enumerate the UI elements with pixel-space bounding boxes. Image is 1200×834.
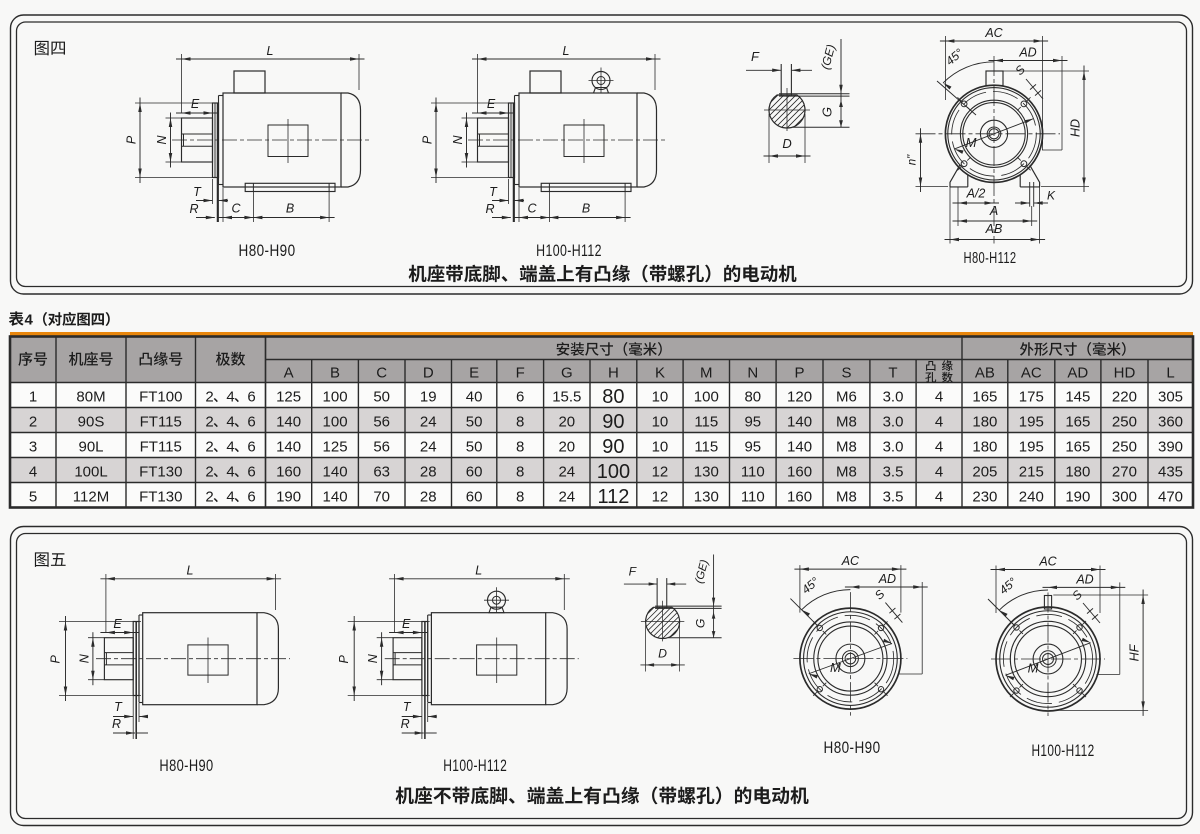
svg-text:3: 3 bbox=[29, 438, 37, 455]
svg-text:435: 435 bbox=[1158, 463, 1183, 480]
svg-text:N: N bbox=[78, 653, 92, 663]
svg-text:N: N bbox=[366, 653, 380, 663]
svg-text:24: 24 bbox=[558, 488, 575, 505]
svg-text:8: 8 bbox=[516, 463, 524, 480]
svg-text:M: M bbox=[830, 660, 841, 675]
svg-text:100: 100 bbox=[323, 413, 348, 430]
svg-text:E: E bbox=[191, 97, 200, 111]
svg-text:15.5: 15.5 bbox=[552, 388, 581, 405]
svg-text:M: M bbox=[1028, 661, 1039, 676]
svg-text:70: 70 bbox=[373, 488, 390, 505]
svg-text:AC: AC bbox=[1021, 365, 1042, 382]
svg-text:160: 160 bbox=[787, 463, 812, 480]
svg-text:195: 195 bbox=[1019, 438, 1044, 455]
svg-text:FT130: FT130 bbox=[139, 488, 182, 505]
svg-text:M8: M8 bbox=[836, 438, 857, 455]
svg-text:12: 12 bbox=[652, 488, 669, 505]
svg-text:2: 2 bbox=[205, 413, 213, 430]
svg-text:D: D bbox=[658, 646, 667, 660]
svg-text:6: 6 bbox=[247, 413, 255, 430]
svg-text:P: P bbox=[337, 654, 351, 663]
svg-text:190: 190 bbox=[1065, 488, 1090, 505]
svg-text:4: 4 bbox=[935, 488, 943, 505]
svg-text:250: 250 bbox=[1112, 438, 1137, 455]
svg-text:8: 8 bbox=[516, 488, 524, 505]
svg-text:470: 470 bbox=[1158, 488, 1183, 505]
svg-text:3.0: 3.0 bbox=[883, 438, 904, 455]
svg-text:220: 220 bbox=[1112, 388, 1137, 405]
svg-text:125: 125 bbox=[276, 388, 301, 405]
svg-text:M8: M8 bbox=[836, 488, 857, 505]
svg-text:L: L bbox=[563, 44, 570, 58]
svg-text:H100-H112: H100-H112 bbox=[536, 242, 602, 260]
svg-text:C: C bbox=[376, 365, 387, 382]
svg-text:H80-H90: H80-H90 bbox=[824, 739, 881, 758]
svg-text:180: 180 bbox=[972, 413, 997, 430]
svg-text:2: 2 bbox=[205, 388, 213, 405]
svg-text:E: E bbox=[469, 365, 479, 382]
svg-text:AC: AC bbox=[984, 26, 1003, 40]
svg-text:250: 250 bbox=[1112, 413, 1137, 430]
svg-text:80: 80 bbox=[744, 388, 761, 405]
svg-text:4: 4 bbox=[935, 388, 943, 405]
svg-text:4: 4 bbox=[29, 463, 37, 480]
svg-text:N: N bbox=[451, 135, 465, 145]
svg-text:10: 10 bbox=[652, 438, 669, 455]
svg-text:HD: HD bbox=[1114, 365, 1136, 382]
svg-text:D: D bbox=[423, 365, 434, 382]
svg-text:110: 110 bbox=[741, 463, 765, 480]
svg-text:L: L bbox=[1166, 365, 1174, 382]
svg-text:140: 140 bbox=[787, 438, 812, 455]
svg-text:180: 180 bbox=[972, 438, 997, 455]
svg-text:E: E bbox=[402, 617, 411, 631]
svg-text:S: S bbox=[841, 365, 851, 382]
svg-text:130: 130 bbox=[694, 488, 719, 505]
svg-text:180: 180 bbox=[1065, 463, 1090, 480]
svg-text:165: 165 bbox=[1065, 413, 1090, 430]
svg-text:FT115: FT115 bbox=[140, 438, 182, 455]
svg-text:n": n" bbox=[907, 154, 919, 165]
svg-text:90: 90 bbox=[602, 411, 624, 433]
svg-text:360: 360 bbox=[1158, 413, 1183, 430]
svg-text:P: P bbox=[125, 135, 139, 144]
svg-text:4: 4 bbox=[226, 488, 234, 505]
svg-text:24: 24 bbox=[420, 413, 437, 430]
svg-text:R: R bbox=[189, 202, 198, 216]
svg-text:A: A bbox=[284, 365, 294, 382]
svg-text:160: 160 bbox=[276, 463, 301, 480]
svg-text:N: N bbox=[155, 135, 169, 145]
svg-text:240: 240 bbox=[1019, 488, 1044, 505]
svg-text:100: 100 bbox=[694, 388, 719, 405]
svg-text:12: 12 bbox=[652, 463, 669, 480]
svg-text:R: R bbox=[401, 717, 410, 731]
svg-text:E: E bbox=[487, 97, 496, 111]
svg-text:140: 140 bbox=[787, 413, 812, 430]
svg-text:2: 2 bbox=[205, 488, 213, 505]
svg-text:F: F bbox=[516, 365, 525, 382]
svg-text:6: 6 bbox=[247, 488, 255, 505]
svg-text:390: 390 bbox=[1158, 438, 1183, 455]
svg-text:R: R bbox=[112, 717, 121, 731]
svg-text:145: 145 bbox=[1065, 388, 1090, 405]
svg-text:G: G bbox=[694, 618, 708, 628]
svg-text:205: 205 bbox=[972, 463, 997, 480]
svg-text:FT100: FT100 bbox=[139, 388, 182, 405]
svg-text:95: 95 bbox=[744, 413, 761, 430]
svg-text:AD: AD bbox=[1018, 46, 1036, 60]
svg-text:AD: AD bbox=[1067, 365, 1088, 382]
svg-text:270: 270 bbox=[1112, 463, 1137, 480]
svg-text:HF: HF bbox=[1128, 643, 1142, 661]
svg-text:F: F bbox=[751, 49, 760, 64]
svg-text:L: L bbox=[267, 44, 274, 58]
svg-text:3.5: 3.5 bbox=[883, 488, 904, 505]
svg-text:2: 2 bbox=[205, 438, 213, 455]
svg-text:160: 160 bbox=[787, 488, 812, 505]
svg-text:B: B bbox=[582, 202, 590, 216]
svg-text:A: A bbox=[989, 204, 998, 218]
svg-text:FT115: FT115 bbox=[140, 413, 182, 430]
svg-text:M: M bbox=[966, 135, 977, 150]
svg-text:140: 140 bbox=[323, 463, 348, 480]
svg-text:AB: AB bbox=[975, 365, 995, 382]
svg-text:P: P bbox=[49, 654, 63, 663]
svg-text:60: 60 bbox=[466, 488, 483, 505]
svg-text:E: E bbox=[113, 617, 122, 631]
svg-text:100: 100 bbox=[597, 461, 630, 483]
svg-text:140: 140 bbox=[276, 413, 301, 430]
svg-text:N: N bbox=[747, 365, 758, 382]
svg-text:M8: M8 bbox=[836, 413, 857, 430]
svg-text:H100-H112: H100-H112 bbox=[1031, 742, 1094, 760]
svg-text:90: 90 bbox=[602, 436, 624, 458]
svg-text:95: 95 bbox=[744, 438, 761, 455]
svg-text:130: 130 bbox=[694, 463, 719, 480]
svg-text:20: 20 bbox=[558, 438, 575, 455]
svg-text:6: 6 bbox=[247, 463, 255, 480]
svg-text:T: T bbox=[403, 700, 412, 714]
svg-text:110: 110 bbox=[741, 488, 765, 505]
svg-text:P: P bbox=[421, 135, 435, 144]
svg-text:56: 56 bbox=[373, 438, 390, 455]
svg-text:300: 300 bbox=[1112, 488, 1137, 505]
svg-text:115: 115 bbox=[694, 413, 718, 430]
svg-text:4: 4 bbox=[226, 413, 234, 430]
svg-text:AC: AC bbox=[841, 554, 860, 568]
svg-text:195: 195 bbox=[1019, 413, 1044, 430]
svg-text:24: 24 bbox=[420, 438, 437, 455]
svg-text:M8: M8 bbox=[836, 463, 857, 480]
svg-text:H80-H90: H80-H90 bbox=[159, 758, 213, 776]
svg-text:60: 60 bbox=[466, 463, 483, 480]
svg-text:3.5: 3.5 bbox=[883, 463, 904, 480]
svg-text:100L: 100L bbox=[74, 463, 107, 480]
svg-text:A/2: A/2 bbox=[966, 187, 986, 201]
svg-text:B: B bbox=[286, 202, 294, 216]
svg-text:H80-H112: H80-H112 bbox=[964, 248, 1017, 267]
svg-text:140: 140 bbox=[323, 488, 348, 505]
svg-text:28: 28 bbox=[420, 463, 437, 480]
svg-text:HD: HD bbox=[1069, 119, 1083, 137]
svg-text:AB: AB bbox=[985, 222, 1003, 236]
svg-text:28: 28 bbox=[420, 488, 437, 505]
svg-text:80M: 80M bbox=[76, 388, 105, 405]
svg-text:125: 125 bbox=[323, 438, 348, 455]
svg-text:T: T bbox=[888, 365, 897, 382]
svg-text:140: 140 bbox=[276, 438, 301, 455]
svg-text:6: 6 bbox=[247, 388, 255, 405]
svg-text:AC: AC bbox=[1038, 555, 1057, 569]
svg-text:10: 10 bbox=[652, 388, 669, 405]
svg-text:3.0: 3.0 bbox=[883, 388, 904, 405]
svg-text:40: 40 bbox=[466, 388, 483, 405]
svg-text:AD: AD bbox=[1075, 572, 1093, 586]
svg-text:P: P bbox=[795, 365, 805, 382]
svg-text:2: 2 bbox=[205, 463, 213, 480]
svg-text:H: H bbox=[608, 365, 619, 382]
svg-text:10: 10 bbox=[652, 413, 669, 430]
svg-text:24: 24 bbox=[558, 463, 575, 480]
svg-text:H80-H90: H80-H90 bbox=[239, 242, 296, 261]
svg-text:4: 4 bbox=[935, 438, 943, 455]
svg-text:5: 5 bbox=[29, 488, 37, 505]
svg-text:20: 20 bbox=[558, 413, 575, 430]
svg-text:L: L bbox=[187, 564, 194, 578]
svg-text:6: 6 bbox=[247, 438, 255, 455]
svg-text:G: G bbox=[820, 107, 835, 117]
svg-text:1: 1 bbox=[29, 388, 37, 405]
svg-text:K: K bbox=[1047, 189, 1056, 203]
svg-text:115: 115 bbox=[694, 438, 718, 455]
svg-text:C: C bbox=[527, 202, 537, 216]
svg-text:100: 100 bbox=[323, 388, 348, 405]
svg-text:C: C bbox=[231, 202, 241, 216]
svg-text:6: 6 bbox=[516, 388, 524, 405]
svg-text:50: 50 bbox=[466, 413, 483, 430]
svg-text:3.0: 3.0 bbox=[883, 413, 904, 430]
svg-text:112M: 112M bbox=[73, 488, 109, 505]
svg-text:50: 50 bbox=[466, 438, 483, 455]
svg-text:90S: 90S bbox=[78, 413, 105, 430]
svg-text:120: 120 bbox=[787, 388, 812, 405]
svg-text:M6: M6 bbox=[836, 388, 857, 405]
svg-text:50: 50 bbox=[373, 388, 390, 405]
svg-text:D: D bbox=[782, 136, 791, 151]
svg-text:90L: 90L bbox=[78, 438, 103, 455]
svg-text:4: 4 bbox=[935, 463, 943, 480]
svg-text:230: 230 bbox=[972, 488, 997, 505]
svg-text:4: 4 bbox=[226, 438, 234, 455]
svg-text:8: 8 bbox=[516, 438, 524, 455]
svg-text:2: 2 bbox=[29, 413, 37, 430]
svg-text:190: 190 bbox=[276, 488, 301, 505]
svg-text:215: 215 bbox=[1019, 463, 1044, 480]
svg-text:B: B bbox=[330, 365, 340, 382]
svg-text:AD: AD bbox=[878, 572, 896, 586]
svg-text:165: 165 bbox=[1065, 438, 1090, 455]
svg-text:165: 165 bbox=[972, 388, 997, 405]
svg-text:8: 8 bbox=[516, 413, 524, 430]
svg-text:80: 80 bbox=[602, 386, 624, 408]
svg-text:4: 4 bbox=[226, 463, 234, 480]
svg-text:4: 4 bbox=[935, 413, 943, 430]
svg-text:63: 63 bbox=[373, 463, 390, 480]
svg-text:FT130: FT130 bbox=[139, 463, 182, 480]
svg-text:4: 4 bbox=[25, 312, 34, 329]
svg-text:K: K bbox=[655, 365, 665, 382]
svg-text:M: M bbox=[700, 365, 713, 382]
svg-text:H100-H112: H100-H112 bbox=[443, 757, 507, 775]
svg-text:56: 56 bbox=[373, 413, 390, 430]
svg-text:112: 112 bbox=[597, 486, 629, 508]
svg-text:G: G bbox=[561, 365, 573, 382]
svg-text:175: 175 bbox=[1019, 388, 1044, 405]
svg-text:L: L bbox=[475, 564, 482, 578]
svg-text:4: 4 bbox=[226, 388, 234, 405]
svg-text:305: 305 bbox=[1158, 388, 1183, 405]
svg-text:R: R bbox=[485, 202, 494, 216]
svg-text:19: 19 bbox=[420, 388, 437, 405]
